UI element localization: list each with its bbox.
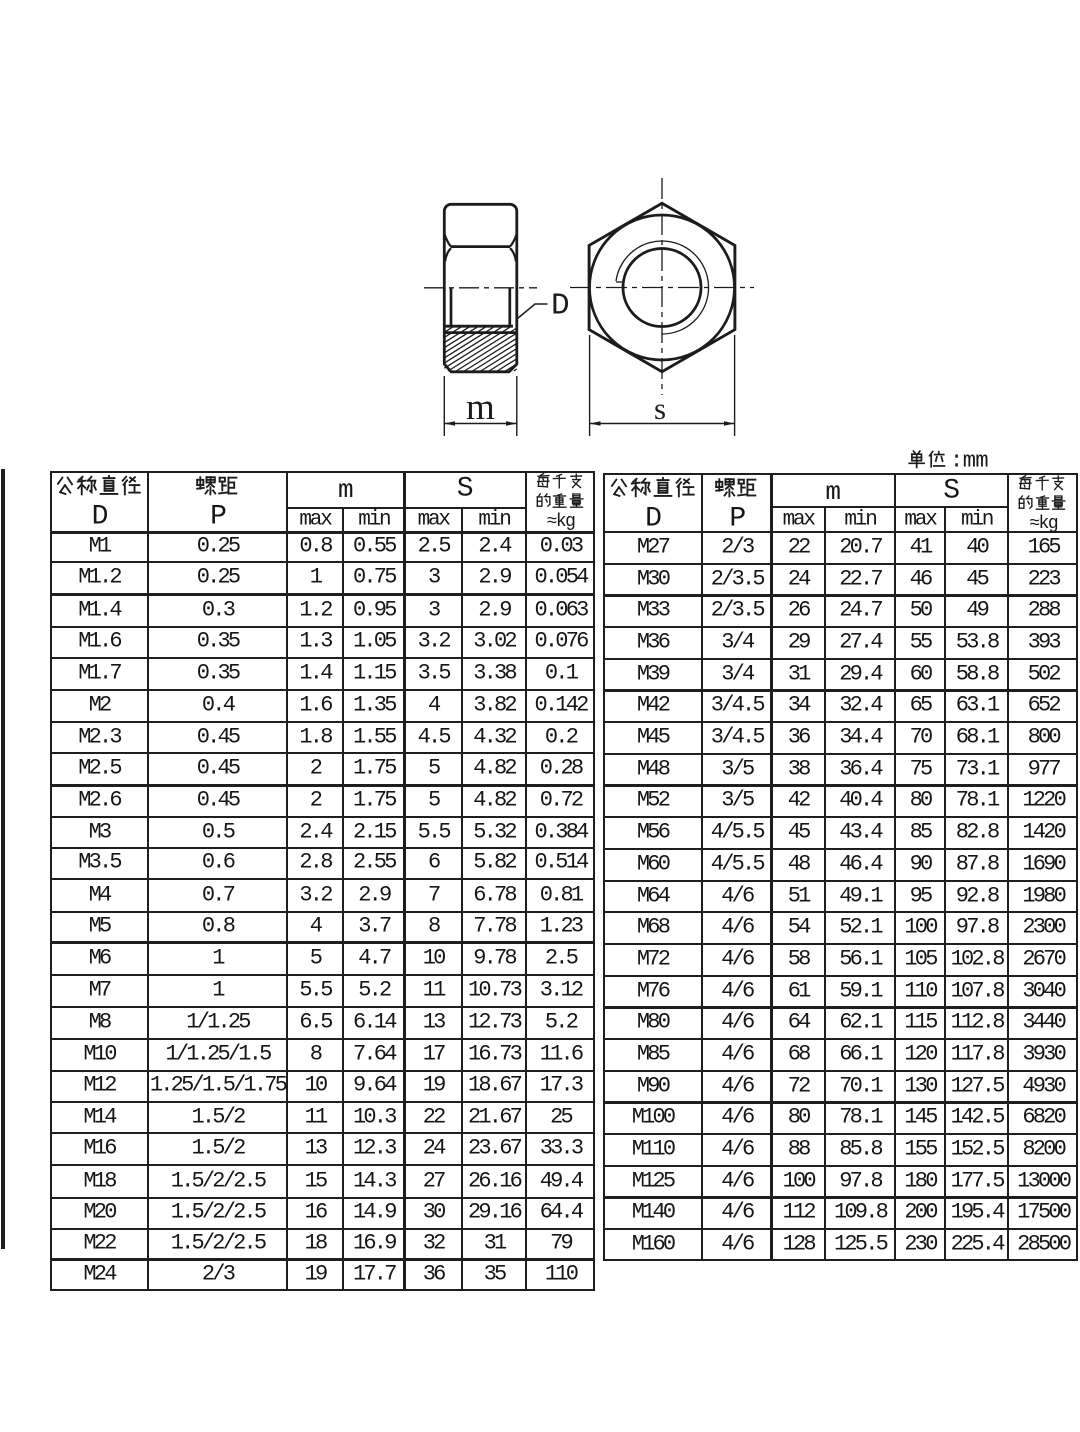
svg-text:D: D xyxy=(551,289,570,324)
svg-text:s: s xyxy=(654,391,666,426)
svg-text:m: m xyxy=(466,387,495,428)
